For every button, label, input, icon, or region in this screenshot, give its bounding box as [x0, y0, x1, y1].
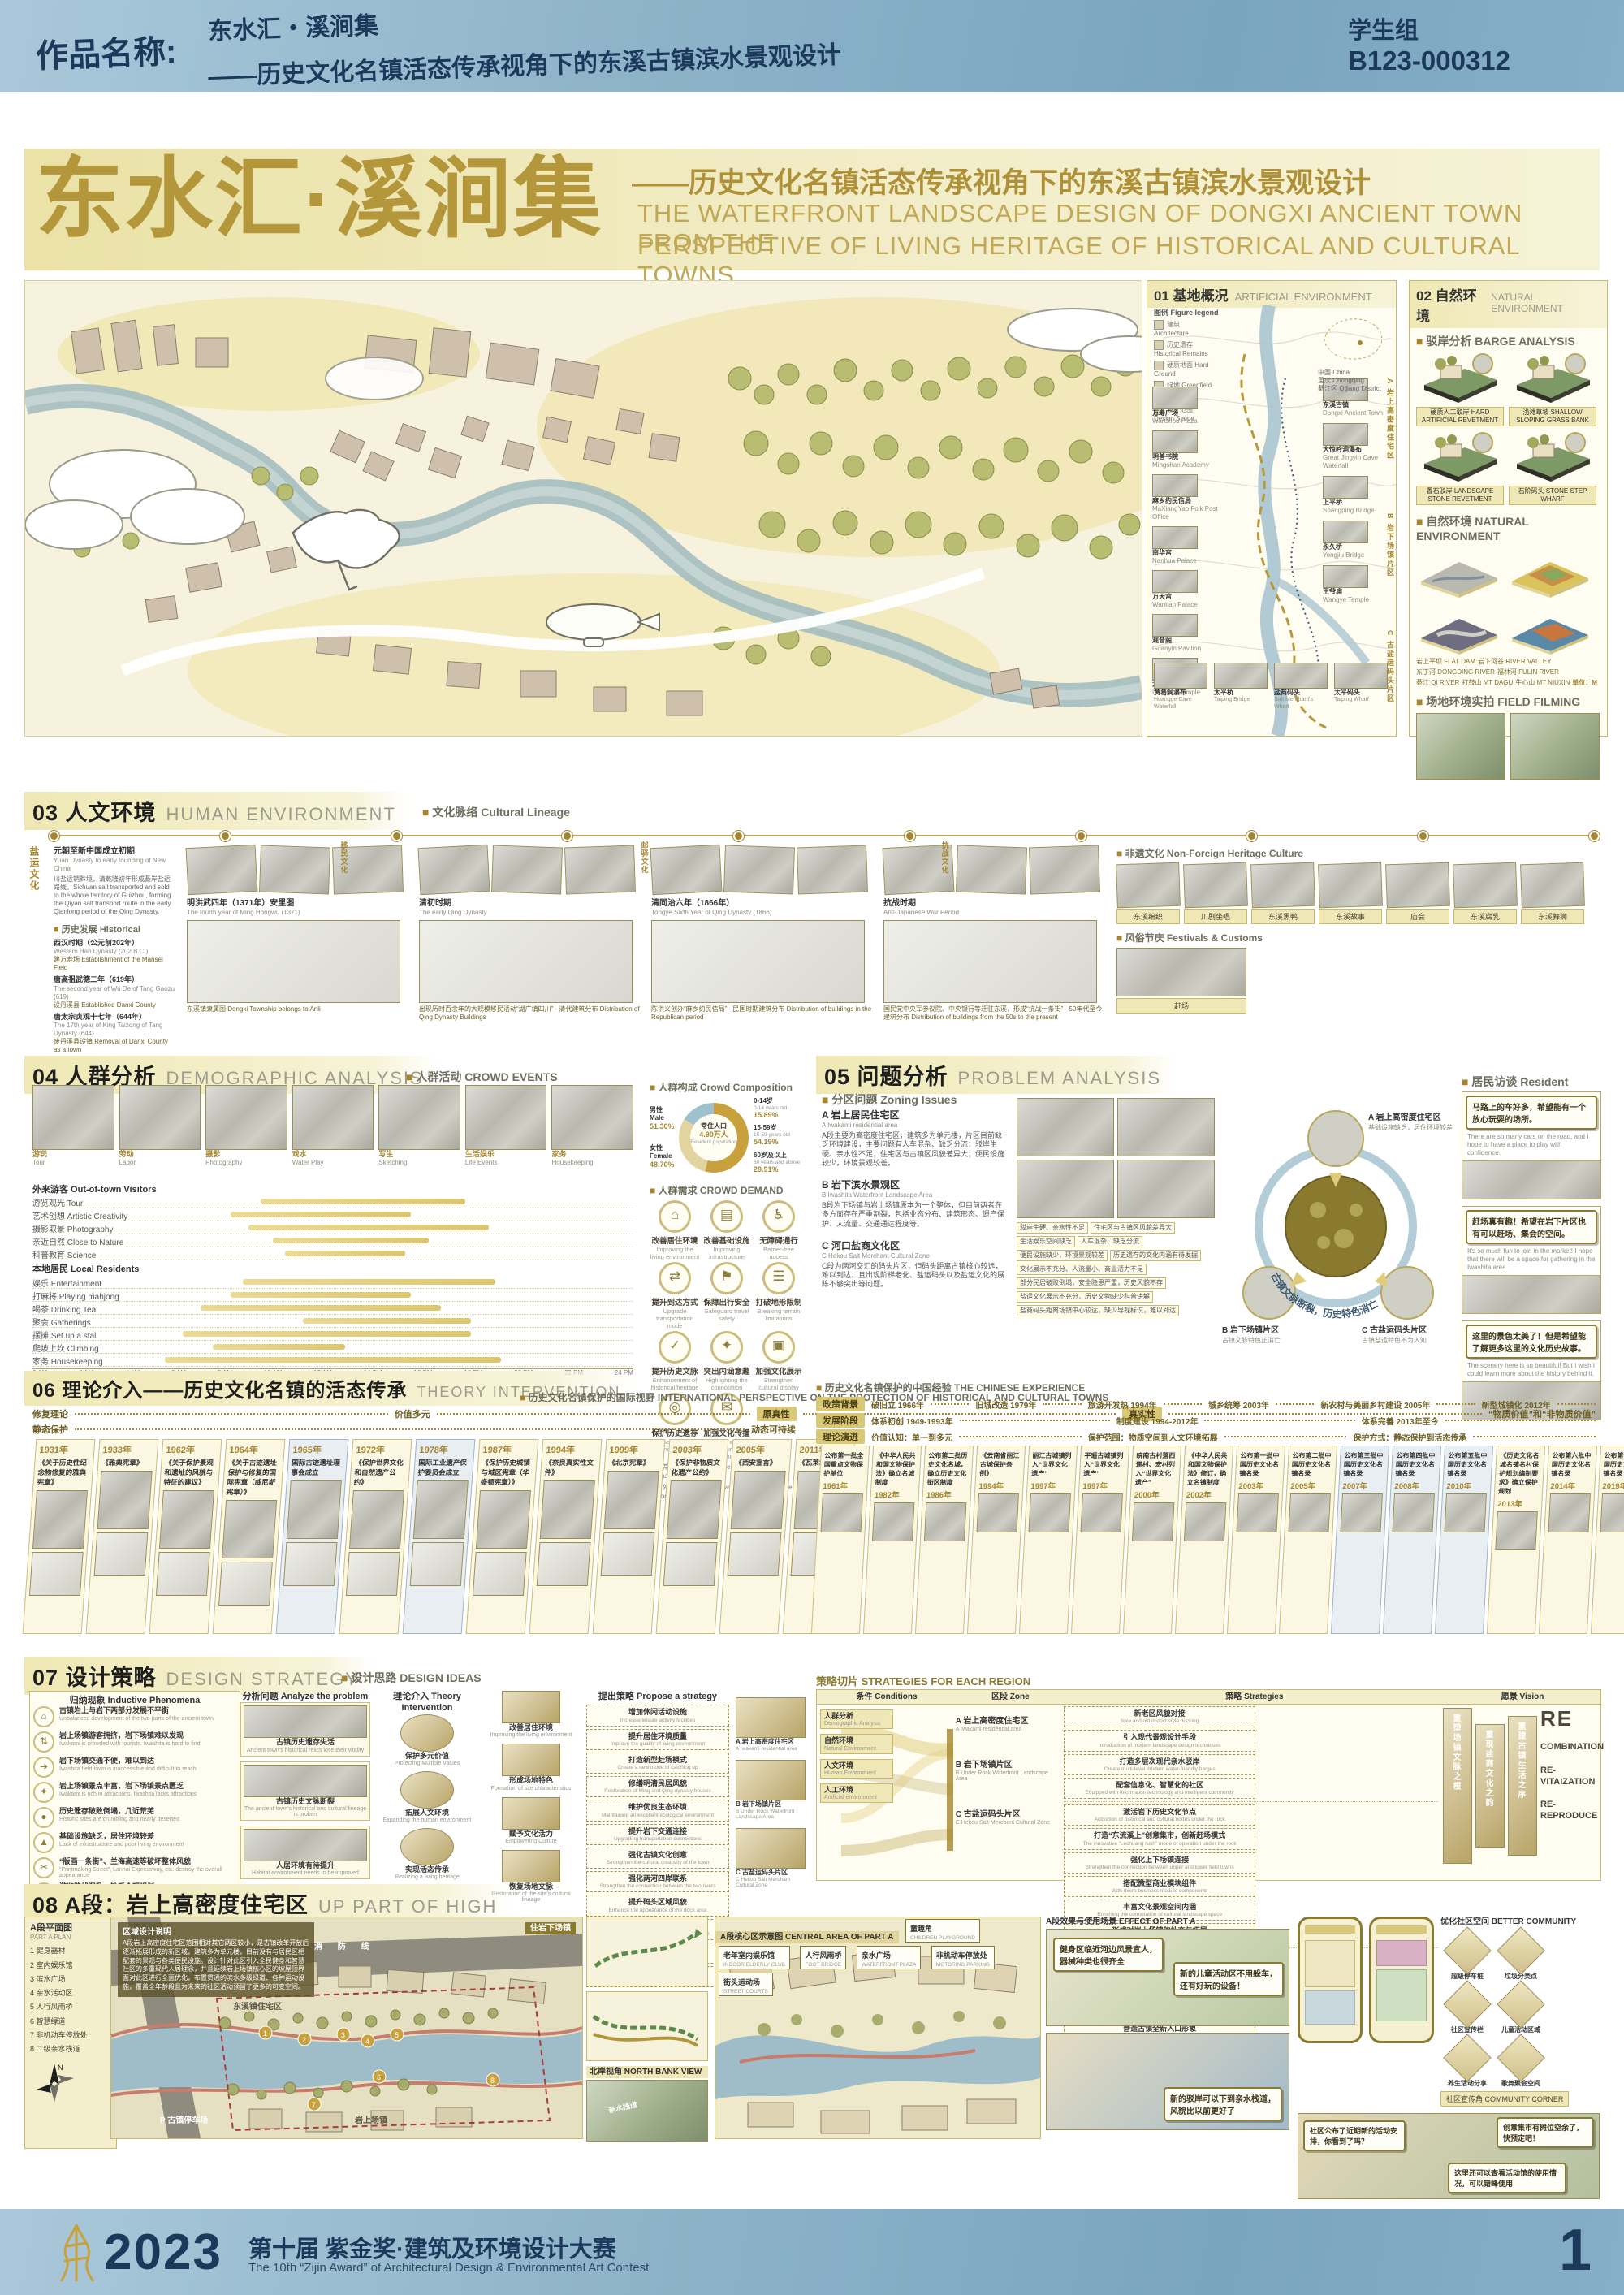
barge-diagram — [1416, 431, 1502, 482]
svg-text:3: 3 — [341, 2031, 345, 2039]
node-A-label: A 岩上高密度住宅区 — [1368, 1113, 1458, 1123]
terrain-label: 綦江 QI RIVER — [1416, 679, 1459, 687]
s06-axis2: 静态保护动态可持续 — [32, 1423, 796, 1436]
effect-scene-2: 新的驳岸可以下到亲水栈道，风貌比以前更好了 — [1046, 2033, 1289, 2130]
phenomenon-icon: ➔ — [33, 1757, 54, 1778]
visitor-rows: 游览观光 Tour 艺术创想 Artistic Creativity 摄影取景 … — [32, 1195, 633, 1260]
s03-sub: 文化脉络 Cultural Lineage — [422, 804, 570, 820]
strategy-item: 搭配微型商业模块组件 With micro business module co… — [1064, 1876, 1255, 1897]
theory-node: 实现活态传承 Realizing a living heritage — [378, 1828, 476, 1880]
zijin-logo — [54, 2222, 99, 2284]
zone-issue: B 岩下滨水景观区 B Iwashita Waterfront Landscap… — [822, 1178, 1009, 1229]
zone-photo — [736, 1828, 806, 1869]
phenomenon-icon: ● — [33, 1807, 54, 1828]
svg-text:1: 1 — [263, 2029, 267, 2038]
landmark-photo — [1323, 423, 1368, 446]
interview-photo — [1462, 1160, 1600, 1199]
app-phone-2 — [1369, 1917, 1434, 2043]
community-tile — [1443, 1926, 1491, 1974]
problem-card-photo — [244, 1829, 367, 1861]
treaty-photo — [97, 1471, 153, 1529]
age-list: 0-14岁 0-14 years old 15.89% 15-59岁 15-59… — [754, 1097, 806, 1178]
s07-sub: 设计思路 DESIGN IDEAS — [341, 1670, 482, 1686]
ich-item: 东溪腐乳 — [1453, 863, 1517, 924]
s03-salt-culture: 盐运文化 — [28, 846, 49, 892]
plan-legend-item: 1 健身器材 — [30, 1947, 111, 1956]
zone-thumb: B 岩下场镇片区 B Under Rock Waterfront Landsca… — [736, 1760, 806, 1820]
milestone-card: 公布第二批历史文化名城，确立历史文化街区制度 1986年 — [915, 1446, 974, 1634]
theory-node: 拓展人文环境 Expanding the human environment — [378, 1771, 476, 1823]
work-title-line1: 东水汇・溪涧集 — [207, 5, 378, 46]
activity-item: 生活娱乐 Life Events — [465, 1085, 547, 1176]
stage-item: 体系完善 2013年至今 — [1362, 1415, 1439, 1427]
terrain-model-slope — [1507, 603, 1593, 655]
panel-01-site: 01 基地概况 ARTIFICIAL ENVIRONMENT 图例 Figure… — [1147, 280, 1397, 737]
landmark: 麻乡约民信局 MaXiangYao Folk Post Office — [1152, 474, 1227, 521]
demand-item: ▣ 加强文化展示 Strengthen cultural display — [754, 1331, 804, 1391]
field-photo — [1416, 713, 1505, 780]
condition-item: 人文环境 Human Environment — [820, 1759, 893, 1779]
treaty-card: 1978年 国际工业遗产保护委员会成立 — [403, 1439, 476, 1634]
treaty-photo — [410, 1542, 464, 1586]
policy-item: 旧城改造 1979年 — [975, 1398, 1036, 1411]
activity-item: 游玩 Tour — [32, 1085, 114, 1176]
strategy-pill: 维护优良生态环境 Maintaining an excellent ecolog… — [586, 1800, 729, 1821]
strategy-pill: 打造新型赶场模式 Create a new mode of catching u… — [586, 1753, 729, 1774]
treaty-photo — [663, 1542, 718, 1586]
zone-side-label: C 古盐运码头片区 — [1385, 630, 1394, 703]
gantt-row: 摄影取景 Photography — [32, 1221, 633, 1234]
phenomenon-icon: ⇅ — [33, 1731, 54, 1753]
treaty-card: 1931年 《关于历史性纪念物修复的雅典宪章》 — [23, 1439, 96, 1634]
activity-photo — [551, 1085, 633, 1150]
strategy-item: 激活岩下历史文化节点 Activation of historical and … — [1064, 1804, 1255, 1826]
panel-02-title-en: NATURAL ENVIRONMENT — [1491, 292, 1600, 314]
treaty-card: 1962年 《关于保护景观和遗址的风貌与特征的建议》 — [149, 1439, 222, 1634]
landmark-photo — [1154, 663, 1207, 689]
gantt-bar — [231, 1292, 411, 1298]
history-item: 唐太宗贞观十七年（644年） The 17th year of King Tai… — [54, 1013, 175, 1054]
milestone-photo — [1600, 1493, 1624, 1532]
zone-row-A: A 岩上高密度住宅区 A Iwakami residential area — [956, 1716, 1059, 1732]
era-map — [187, 920, 400, 1003]
effect-title: A段效果与使用场景 EFFECT OF PART A — [1046, 1917, 1289, 1927]
parking-label: P 古镇停车场 — [160, 2116, 208, 2126]
s05-interviews: 马路上的车好多，希望能有一个放心玩耍的场所。 There are so many… — [1462, 1091, 1601, 1427]
terrain-labels: 岩上平坝 FLAT DAM 岩下河谷 RIVER VALLEY 东丁河 DONG… — [1410, 656, 1607, 689]
treaty-card: 1987年 《保护历史城镇与城区宪章（华盛顿宪章）》 — [466, 1439, 539, 1634]
mid-image — [502, 1850, 560, 1882]
ich-item: 东溪编织 — [1116, 863, 1180, 924]
zone-row-B: B 岩下场镇片区 B Under Rock Waterfront Landsca… — [956, 1760, 1059, 1782]
problem-tag: 盐商码头距离场镇中心较远，缺少导视标识，难以到达 — [1017, 1305, 1179, 1316]
terrain-label: 福林河 FULIN RIVER — [1497, 668, 1559, 676]
problem-photo — [1017, 1160, 1114, 1218]
s07-col-theory: 理论介入 Theory Intervention 保护多元价值 Protecti… — [378, 1691, 476, 1885]
barge-item: 石阶码头 STONE STEP WHARF — [1509, 431, 1596, 505]
ich-item: 东溪故事 — [1319, 863, 1382, 924]
group-label: 学生组 — [1348, 11, 1419, 45]
gantt-row: 游览观光 Tour — [32, 1195, 633, 1208]
treaty-photo — [473, 1552, 527, 1596]
gantt-bar — [165, 1357, 501, 1363]
s05-sub: 分区问题 Zoning Issues — [822, 1091, 957, 1108]
landmarks-left: 万寿广场 Wanshou Plaza 明善书院 Mingshan Academy… — [1152, 387, 1227, 702]
residents-title: 本地居民 Local Residents — [32, 1264, 633, 1275]
gantt-bar — [213, 1344, 345, 1350]
community-item: 儿童活动区域 — [1494, 1981, 1548, 2034]
barge-grid: 硬质人工驳岸 HARD ARTIFICIAL REVETMENT 浅滩草坡 SH… — [1410, 351, 1607, 507]
unit-label: 单位：M — [1572, 679, 1597, 687]
zone-side-label: A 岩上高密度住宅区 — [1385, 378, 1394, 460]
problem-photo — [1017, 1098, 1114, 1156]
milestone-photo — [1288, 1493, 1331, 1532]
vision-word: RE-VITAIZATION — [1540, 1765, 1597, 1788]
ich-list: 东溪编织 川剧坐唱 东溪黑鸭 东溪故事 — [1116, 863, 1600, 924]
ich-photo — [1453, 862, 1518, 909]
treaty-photo — [29, 1552, 84, 1596]
axon-label: 人行风雨桥 FOOT BRIDGE — [800, 1946, 846, 1969]
theory-node: 保护多元价值 Protecting Multiple Values — [378, 1714, 476, 1766]
community-tile — [1497, 1980, 1544, 2028]
treaty-photo — [604, 1471, 659, 1529]
interview-card: 马路上的车好多，希望能有一个放心玩耍的场所。 There are so many… — [1462, 1091, 1601, 1199]
s06-china-timeline: 公布第一批全国重点文物保护单位 1961年 《中华人民共和国文物保护法》确立名城… — [816, 1446, 1600, 1634]
footer-band: 2023 第十届 紫金奖·建筑及环境设计大赛 The 10th “Zijin A… — [0, 2209, 1624, 2295]
milestone-card: 公布第六批中国历史文化名镇名录 2014年 — [1539, 1446, 1597, 1634]
problem-tag: 历史遗存的文化内涵有待发掘 — [1110, 1250, 1201, 1261]
slices-panel: 条件 Conditions 区段 Zone 策略 Strategies 愿景 V… — [816, 1689, 1601, 1881]
problem-card-photo — [244, 1705, 367, 1738]
landmark-photo — [1274, 663, 1328, 689]
treaty-card: 1972年 《保护世界文化和自然遗产公约》 — [339, 1439, 412, 1634]
s06-policy-row: 政策背景 破旧立 1966年旧城改造 1979年旅游开发热 1994年城乡统筹 … — [816, 1397, 1596, 1411]
vision-strip: 重建古镇生活之序 — [1508, 1716, 1537, 1856]
node-C-label: C 古盐运码头片区 — [1362, 1325, 1459, 1336]
demand-item: ♿ 无障碍通行 Barrier-free access — [754, 1200, 804, 1260]
phenomenon: ⌂ 古镇岩上与岩下两部分发展不平衡 Unbalanced development… — [33, 1706, 236, 1727]
treaty-photo — [601, 1532, 655, 1576]
phenomenon: ➔ 岩下场镇交通不便，难以到达 Iwashita field town is i… — [33, 1757, 236, 1778]
poster-page: 作品名称: 东水汇・溪涧集 ——历史文化名镇活态传承视角下的东溪古镇滨水景观设计… — [0, 0, 1624, 2295]
problem-photo — [1117, 1160, 1215, 1218]
demand-item: ⚑ 保障出行安全 Safeguard travel safety — [702, 1262, 752, 1329]
treaty-photo — [476, 1490, 531, 1549]
community-tile — [1497, 1926, 1544, 1974]
milestone-photo — [820, 1493, 863, 1532]
phenomenon: ✦ 岩上场镇景点丰富，岩下场镇景点匮乏 Iwakami is rich in a… — [33, 1782, 236, 1803]
vision-col: 重塑场镇文脉之根 重现盐商文化之韵 重建古镇生活之序 RE COMBINATIO… — [1440, 1705, 1600, 1874]
zone-row-C: C 古盐运码头片区 C Hekou Salt Merchant Cultural… — [956, 1809, 1059, 1826]
gantt-row: 打麻将 Playing mahjong — [32, 1289, 633, 1302]
strategy-item: 配套信息化、智慧化的社区 Equipped with information t… — [1064, 1778, 1255, 1799]
comic-scene: 社区公布了近期新的活动安排，你看到了吗？ 创意集市有摊位空余了，快预定吧！ 这里… — [1298, 2113, 1600, 2199]
treaty-card: 1994年 《奈良真实性文件》 — [529, 1439, 603, 1634]
treaty-photo — [283, 1542, 338, 1586]
ich-item: 川剧坐唱 — [1184, 863, 1247, 924]
milestone-photo — [1392, 1493, 1435, 1532]
age-item: 0-14岁 0-14 years old 15.89% — [754, 1097, 806, 1120]
treaty-photo — [731, 1471, 786, 1529]
gantt-row: 聚会 Gatherings — [32, 1315, 633, 1328]
walkway-label: 亲水栈道 — [607, 2100, 638, 2115]
gantt-bar — [231, 1212, 411, 1217]
phenomenon-icon: ▲ — [33, 1832, 54, 1853]
zone-side-label: B 岩下场镇片区 — [1385, 513, 1394, 577]
s04-sub: 人群活动 CROWD EVENTS — [406, 1069, 558, 1085]
vision-word: RE-REPRODUCE — [1540, 1799, 1597, 1822]
demand-item: ☰ 打破地形限制 Breaking terrain limitations — [754, 1262, 804, 1329]
demand-icon: ⇄ — [659, 1262, 691, 1294]
phenomenon-icon: ⌂ — [33, 1706, 54, 1727]
field-photo — [1510, 713, 1600, 780]
mid-image — [502, 1691, 560, 1723]
s07-col-phenomena: 归纳现象 Inductive Phenomena ⌂ 古镇岩上与岩下两部分发展不… — [29, 1691, 240, 1887]
milestone-photo — [1236, 1493, 1279, 1532]
treaty-photo — [667, 1480, 722, 1539]
milestone-card: 公布第四批中国历史文化名镇名录 2008年 — [1383, 1446, 1441, 1634]
resi-label: 东溪镇住宅区 — [233, 2002, 282, 2012]
barge-item: 浅滩草坡 SHALLOW SLOPING GRASS BANK — [1509, 352, 1596, 426]
demand-icon: ▣ — [762, 1331, 795, 1364]
community-item: 超级停车桩 — [1440, 1927, 1494, 1981]
plan-legend-item: 4 亲水活动区 — [30, 1989, 111, 1998]
svg-text:4: 4 — [365, 2038, 369, 2046]
s03-header: 03 人文环境HUMAN ENVIRONMENT — [24, 792, 411, 830]
activity-item: 摄影 Photography — [205, 1085, 287, 1176]
field-filming-title: 场地环境实拍 FIELD FILMING — [1416, 694, 1600, 710]
ich-photo — [1183, 862, 1248, 909]
era-map — [419, 920, 633, 1003]
svg-text:8: 8 — [490, 2077, 495, 2085]
landmark-photo — [1323, 565, 1368, 588]
milestone-card: 公布第五批中国历史文化名镇名录 2010年 — [1435, 1446, 1493, 1634]
gantt-bar — [261, 1199, 465, 1204]
terrain-label: 岩下河谷 RIVER VALLEY — [1478, 658, 1552, 666]
ich-item: 东溪黑鸭 — [1251, 863, 1315, 924]
treaty-card: 1999年 《北京宪章》 — [593, 1439, 666, 1634]
design-note: 区域设计说明 A段岩上高密度住宅区范围相对其它两区较小，是古镇改革开放后逐渐拓展… — [118, 1922, 314, 1997]
china-inset: 中国 China 重庆 Chongqing 綦江区 Qijiang Distri… — [1318, 310, 1391, 393]
activity-item: 写生 Sketching — [378, 1085, 460, 1176]
condition-item: 人群分析 Demographic Analysis — [820, 1709, 893, 1729]
strategy-item: 引入现代景观设计手段 Introduction of modern landsc… — [1064, 1730, 1255, 1751]
strategy-pill: 提升码头区域风貌 Enhance the appearance of the d… — [586, 1895, 729, 1916]
landmark: 太平桥 Taiping Bridge — [1214, 663, 1269, 711]
plan-legend-item: 3 滨水广场 — [30, 1975, 111, 1984]
mid-image — [502, 1797, 560, 1830]
strategies-col: 新老区风貌对接 New and old district style docki… — [1062, 1705, 1440, 1874]
s05-zones: A 岩上居民住宅区 A Iwakami residential area A段主… — [822, 1108, 1009, 1299]
strategy-item: 强化上下场镇连接 Strengthen the connection betwe… — [1064, 1852, 1255, 1874]
treaty-card: 1933年 《雅典宪章》 — [86, 1439, 159, 1634]
terrain-label: 东丁河 DONGDING RIVER — [1416, 668, 1495, 676]
china-inset-map — [1318, 310, 1389, 367]
activity-photo — [292, 1085, 374, 1150]
mid-node: 赋予文化活力 Empowering Culture — [484, 1797, 578, 1844]
landmark-photo — [1323, 476, 1368, 499]
treaty-photo — [156, 1552, 210, 1596]
ich-photo — [1385, 862, 1450, 909]
barge-analysis-title: 驳岸分析 BARGE ANALYSIS — [1416, 333, 1600, 349]
milestone-photo — [872, 1502, 915, 1541]
theory-item: 保护方式：静态保护到活态传承 — [1353, 1431, 1466, 1443]
s03-salt-block: 元朝至新中国成立初期 Yuan Dynasty to early foundin… — [54, 846, 175, 1054]
activity-item: 戏水 Water Play — [292, 1085, 374, 1176]
milestone-photo — [924, 1502, 967, 1541]
community-corner: 社区宣传角 COMMUNITY CORNER — [1440, 2091, 1569, 2107]
treaty-photo — [32, 1490, 88, 1549]
top-header-band: 作品名称: 东水汇・溪涧集 ——历史文化名镇活态传承视角下的东溪古镇滨水景观设计… — [0, 0, 1624, 92]
community-tile — [1443, 2034, 1491, 2081]
barge-item: 硬质人工驳岸 HARD ARTIFICIAL REVETMENT — [1416, 352, 1504, 426]
fire-line-label: 消 防 线 — [314, 1942, 376, 1952]
demand-icon: ♿ — [762, 1200, 795, 1233]
demand-icon: ⌂ — [659, 1200, 691, 1233]
mid-node: 形成场地特色 Formation of site characteristics — [484, 1744, 578, 1791]
ich-photo — [1116, 862, 1181, 909]
fest-list: 赶场 — [1116, 948, 1600, 1014]
page-number: 1 — [1559, 2217, 1592, 2284]
barge-diagram — [1416, 352, 1502, 403]
history-item: 西汉时期（公元前202年） Western Han Dynasty (202 B… — [54, 939, 175, 972]
s03-ich-block: 非遗文化 Non-Foreign Heritage Culture 东溪编织 川… — [1116, 846, 1600, 1014]
milestone-card: 《云南省丽江古城保护条例》 1994年 — [967, 1446, 1026, 1634]
problem-tag: 部分民居破败倒塌，安全隐患严重，历史风貌不存 — [1017, 1277, 1166, 1289]
policy-item: 新农村与美丽乡村建设 2005年 — [1320, 1398, 1430, 1411]
community-item: 歌舞聚会空间 — [1494, 2034, 1548, 2088]
inset-label: 重庆 Chongqing — [1318, 377, 1391, 385]
landmark: 万天宫 Wantian Palace — [1152, 570, 1227, 609]
s07-col-mids: 改善居住环境 Improving the living environment … — [484, 1691, 578, 1908]
milestone-card: 《中华人民共和国文物保护法》修订，确立名镇制度 2002年 — [1175, 1446, 1233, 1634]
demand-icon: ✦ — [710, 1331, 743, 1364]
treaty-card: 2005年 《西安宣言》 — [719, 1439, 793, 1634]
demand-icon: ▤ — [710, 1200, 743, 1233]
milestone-card: 公布第一批全国重点文物保护单位 1961年 — [811, 1446, 870, 1634]
condition-item: 人工环境 Artificial environment — [820, 1783, 893, 1803]
plan-legend-item: 2 室内娱乐馆 — [30, 1961, 111, 1970]
problem-card: 古镇历史遗存失活 Ancient town's historical relic… — [240, 1702, 370, 1756]
s04-activity-collage: 游玩 Tour 劳动 Labor 摄影 Photography 戏水 Water… — [32, 1085, 633, 1176]
activity-photo — [205, 1085, 287, 1150]
zone-issue: A 岩上居民住宅区 A Iwakami residential area A段主… — [822, 1108, 1009, 1168]
age-item: 60岁及以上 60 years and above 29.91% — [754, 1152, 806, 1174]
gantt-row: 喝茶 Drinking Tea — [32, 1302, 633, 1315]
effect-scene-1: 健身区临近河边风景宜人，器械种类也很齐全 新的儿童活动区不用躲车，还有好玩的设备… — [1046, 1929, 1289, 2026]
interview-card: 赶场真有趣！希望在岩下片区也有可以赶场、集会的空间。 It's so much … — [1462, 1206, 1601, 1314]
problem-tag: 盐运文化展示不充分，历史文物缺少科普讲解 — [1017, 1291, 1153, 1303]
panel-01-title-en: ARTIFICIAL ENVIRONMENT — [1235, 291, 1372, 303]
treaty-photo — [346, 1552, 400, 1596]
s06-cn-sub: 历史文化名镇保护的中国经验 THE CHINESE EXPERIENCE — [816, 1381, 1085, 1394]
terrain-model-gray — [1416, 546, 1502, 598]
treaty-photo — [413, 1480, 469, 1539]
zone-side-labels: A 岩上高密度住宅区 B 岩下场镇片区 C 古盐运码头片区 — [1385, 378, 1394, 703]
terrain-label: 打鼓山 MT DAGU — [1462, 679, 1513, 687]
milestone-photo — [1028, 1493, 1071, 1532]
milestone-card: 公布第二批中国历史文化名镇名录 2005年 — [1279, 1446, 1337, 1634]
s08-plan: 1 2 3 4 5 6 7 8 区域设计说明 A段岩上高密度住宅区范围相对其它两… — [110, 1917, 583, 2139]
milestone-photo — [1132, 1502, 1175, 1541]
svg-text:7: 7 — [312, 2101, 316, 2109]
landmark: 万寿广场 Wanshou Plaza — [1152, 387, 1227, 426]
policy-item: 城乡统筹 2003年 — [1208, 1398, 1269, 1411]
activity-photo — [378, 1085, 460, 1150]
gantt-bar — [243, 1279, 495, 1285]
s07-header: 07 设计策略DESIGN STRATEGY — [24, 1657, 374, 1695]
s08-flow-diagrams: 北岸视角 NORTH BANK VIEW 亲水栈道 — [586, 1917, 708, 2137]
phenomenon-icon: ✦ — [33, 1782, 54, 1803]
landmarks-right: 东溪古镇 Dongxi Ancient Town 大惊吟洞瀑布 Great Ji… — [1323, 378, 1391, 610]
theory-item: 价值认知：单一到多元 — [871, 1431, 952, 1443]
community-item: 垃圾分类点 — [1494, 1927, 1548, 1981]
gantt-row: 爬坡上坎 Climbing — [32, 1341, 633, 1354]
plan-legend-item: 6 智慧绿道 — [30, 2017, 111, 2026]
gantt-bar — [248, 1225, 489, 1230]
milestone-card: 《中华人民共和国文物保护法》确立名城制度 1982年 — [863, 1446, 922, 1634]
s08-axon: A段核心区示意图 CENTRAL AREA OF PART A 童趣角 CHIL… — [715, 1917, 1041, 2139]
landmark: 大惊吟洞瀑布 Great Jingyin Cave Waterfall — [1323, 423, 1391, 470]
north-view-title: 北岸视角 NORTH BANK VIEW — [586, 2066, 708, 2078]
landmarks-bottom: 黄葛洞瀑布 Huangge Cave Waterfall 太平桥 Taiping… — [1154, 663, 1389, 711]
ich-item: 东溪舞狮 — [1521, 863, 1584, 924]
conditions-col: 人群分析 Demographic Analysis 自然环境 Natural E… — [817, 1705, 952, 1874]
slices-title: 策略切片 STRATEGIES FOR EACH REGION — [816, 1673, 1030, 1688]
strategy-pill: 强化两河四岸联系 Strengthen the connection betwe… — [586, 1871, 729, 1892]
panel-01-title: 01 基地概况 — [1154, 284, 1229, 305]
problem-card: 人居环境有待提升 Habitat environment needs to be… — [240, 1826, 370, 1879]
landmark: 上平桥 Shangping Bridge — [1323, 476, 1391, 515]
stratA-group: 新老区风貌对接 New and old district style docki… — [1064, 1706, 1438, 1802]
milestone-card: 丽江古城镇列入“世界文化遗产” 1997年 — [1019, 1446, 1078, 1634]
ich-photo — [1250, 862, 1315, 909]
strategy-pill: 增加休闲活动设施 Increase leisure activity facil… — [586, 1705, 729, 1726]
gantt-row: 艺术创想 Artistic Creativity — [32, 1208, 633, 1221]
community-item: 社区宣传栏 — [1440, 1981, 1494, 2034]
culture-chip: 移民文化 — [339, 841, 348, 885]
landmark-photo — [1323, 521, 1368, 543]
s05-diagram: 古镇文脉断裂，历史特色消亡 A 岩上高密度住宅区 基础设施缺乏，居住环境较差 B… — [1222, 1088, 1458, 1356]
terrain-label: 牛心山 MT NIUXIN — [1515, 679, 1570, 687]
plan-legend-item: 5 人行风雨桥 — [30, 2003, 111, 2012]
gantt-row: 科普教育 Science — [32, 1247, 633, 1260]
gantt-bar — [201, 1305, 441, 1311]
zone-photo — [736, 1760, 806, 1800]
landmark-photo — [1334, 663, 1388, 689]
inset-label: 綦江区 Qijiang District — [1318, 385, 1391, 393]
terrain-model-dark — [1416, 603, 1502, 655]
fest-item: 赶场 — [1116, 948, 1246, 1014]
upper-label: 岩上场镇 — [355, 2116, 387, 2126]
footer-year: 2023 — [104, 2224, 222, 2281]
problem-tag: 住宅区与古镇区风貌差异大 — [1091, 1222, 1175, 1234]
landmark: 盐商码头 Salt Merchant's Wharf — [1274, 663, 1329, 711]
main-title-cn: 东水汇·溪涧集 — [36, 155, 603, 243]
gantt-row: 摆摊 Set up a stall — [32, 1328, 633, 1341]
aerial-illustration-svg — [25, 281, 1142, 736]
s03-culture-chips: 移民文化 邮驿文化 抗战文化 — [193, 841, 1095, 885]
history-item: 唐高祖武德二年（619年） The second year of Wu De o… — [54, 975, 175, 1009]
landmark: 明善书院 Mingshan Academy — [1152, 430, 1227, 469]
barge-item: 置石驳岸 LANDSCAPE STONE REVETMENT — [1416, 431, 1504, 505]
demand-item: ⇄ 提升到达方式 Upgrade transportation mode — [650, 1262, 700, 1329]
terrain-label: 岩上平坝 FLAT DAM — [1416, 658, 1475, 666]
treaty-card: 2003年 《保护非物质文化遗产公约》 — [656, 1439, 729, 1634]
gantt-row: 亲近自然 Close to Nature — [32, 1234, 633, 1247]
zone-issue: C 河口盐商文化区 C Hekou Salt Merchant Cultural… — [822, 1238, 1009, 1290]
entry-code: B123-000312 — [1348, 45, 1510, 76]
